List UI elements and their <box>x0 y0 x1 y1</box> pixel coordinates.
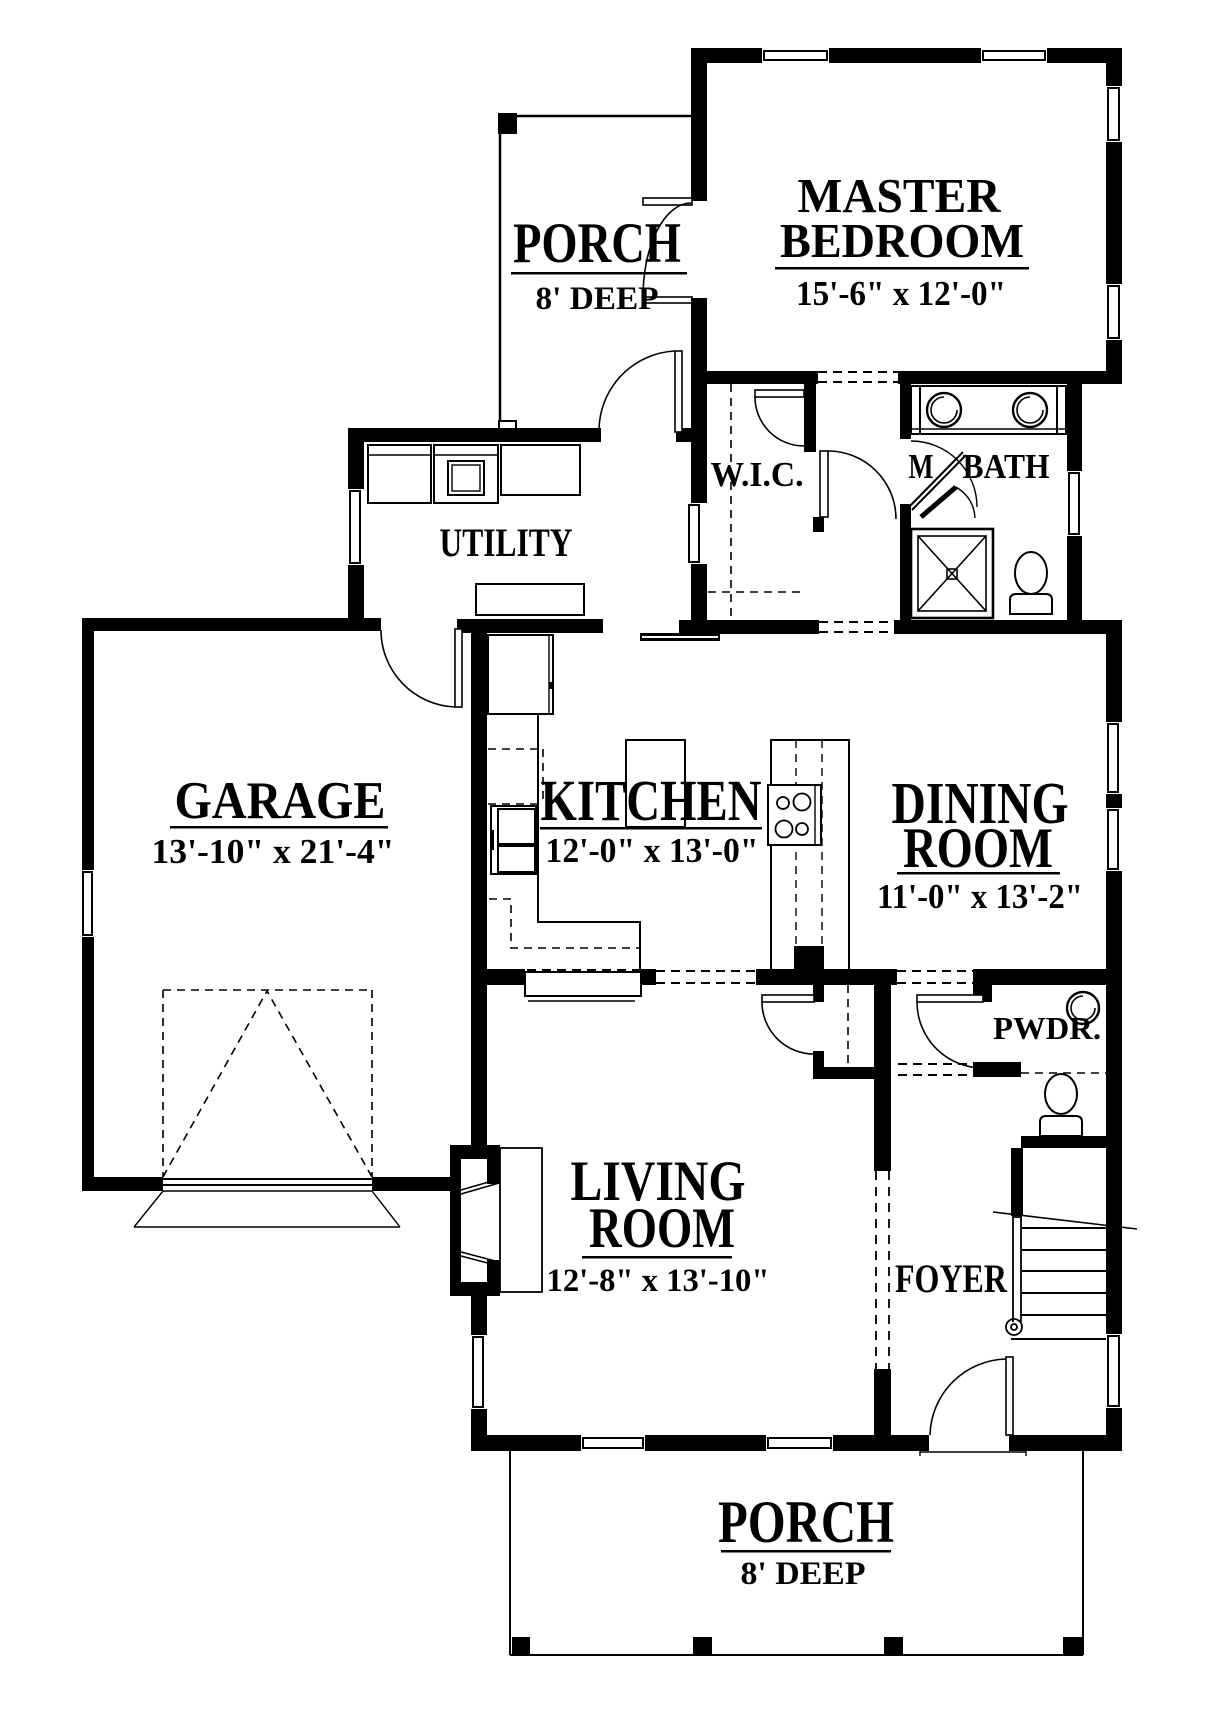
svg-text:M: M <box>909 447 934 486</box>
svg-text:FOYER: FOYER <box>895 1256 1008 1301</box>
svg-text:12'-8" x 13'-10": 12'-8" x 13'-10" <box>547 1263 770 1299</box>
svg-text:PORCH: PORCH <box>513 212 681 275</box>
svg-text:13'-10" x 21'-4": 13'-10" x 21'-4" <box>152 832 395 871</box>
svg-text:PORCH: PORCH <box>718 1489 894 1555</box>
svg-text:BATH: BATH <box>963 447 1050 486</box>
svg-text:ROOM: ROOM <box>903 817 1053 880</box>
svg-text:UTILITY: UTILITY <box>440 520 573 565</box>
svg-text:KITCHEN: KITCHEN <box>541 768 762 833</box>
svg-text:BEDROOM: BEDROOM <box>780 213 1024 268</box>
svg-text:15'-6" x 12'-0": 15'-6" x 12'-0" <box>796 274 1006 313</box>
svg-text:PWDR.: PWDR. <box>993 1010 1101 1046</box>
svg-text:11'-0" x 13'-2": 11'-0" x 13'-2" <box>877 877 1083 916</box>
svg-text:ROOM: ROOM <box>589 1197 735 1260</box>
svg-text:W.I.C.: W.I.C. <box>711 455 804 494</box>
svg-text:GARAGE: GARAGE <box>175 772 386 830</box>
svg-text:8' DEEP: 8' DEEP <box>536 281 659 317</box>
svg-text:12'-0" x 13'-0": 12'-0" x 13'-0" <box>546 831 759 870</box>
svg-text:8' DEEP: 8' DEEP <box>741 1556 866 1592</box>
